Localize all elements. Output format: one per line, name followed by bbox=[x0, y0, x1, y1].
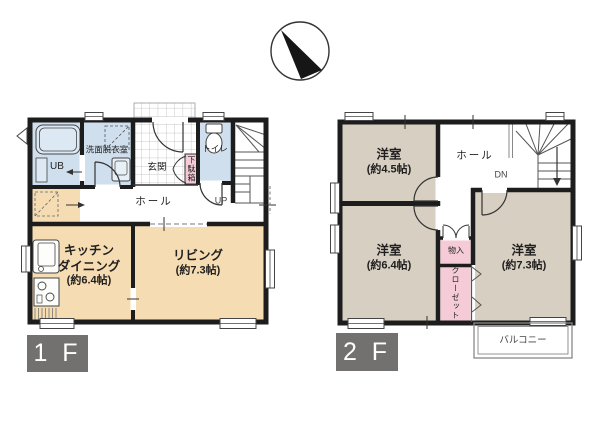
stairs-2f bbox=[509, 124, 571, 188]
entrance-label: 玄関 bbox=[147, 162, 166, 174]
stairs-1f bbox=[235, 125, 266, 203]
floor1-badge: 1 F bbox=[27, 335, 88, 372]
bedroom-73-name: 洋室 bbox=[502, 243, 547, 259]
bedroom-45-size: (約4.5帖) bbox=[367, 163, 412, 177]
unit-bath-label: UB bbox=[50, 161, 64, 174]
bedroom-45-label: 洋室 (約4.5帖) bbox=[367, 147, 412, 176]
hall-2f-label: ホール bbox=[456, 149, 494, 162]
kitchen-dining-label: キッチン ダイニング (約6.4帖) bbox=[58, 244, 121, 289]
living-label: リビング (約7.3帖) bbox=[173, 248, 223, 277]
stairs-down-arrow bbox=[553, 147, 561, 186]
stairs-up-label: UP bbox=[215, 195, 228, 206]
storage-label: 物入 bbox=[448, 246, 464, 256]
washbasin-icon bbox=[112, 158, 130, 181]
bedroom-64-size: (約6.4帖) bbox=[367, 259, 412, 273]
bedroom-64-label: 洋室 (約6.4帖) bbox=[367, 243, 412, 272]
floor2-badge: 2 F bbox=[336, 333, 398, 371]
closet-label: クローゼット bbox=[451, 266, 459, 320]
floorplan-page: UB 洗面脱衣室 玄関 下駄箱 トイレ ホール UP キッチン ダイニング (約… bbox=[0, 0, 600, 447]
stove-icon bbox=[34, 278, 59, 306]
kitchen-name-line1: キッチン bbox=[58, 244, 121, 260]
balcony-label: バルコニー bbox=[499, 335, 546, 347]
kitchen-name-line2: ダイニング bbox=[58, 259, 121, 275]
washroom-label: 洗面脱衣室 bbox=[86, 145, 129, 156]
kitchen-sink-icon bbox=[33, 240, 59, 273]
north-arrow-icon bbox=[271, 22, 329, 80]
stairs-dn-label: DN bbox=[495, 169, 508, 180]
bedroom-73-label: 洋室 (約7.3帖) bbox=[502, 243, 547, 272]
vent-triangle-icon bbox=[17, 128, 27, 144]
bedroom-45-name: 洋室 bbox=[367, 147, 412, 163]
floor1-plan bbox=[17, 103, 276, 329]
kitchen-size: (約6.4帖) bbox=[58, 275, 121, 289]
bedroom-73-size: (約7.3帖) bbox=[502, 259, 547, 273]
hall-1f-label: ホール bbox=[135, 195, 173, 208]
bedroom-64-name: 洋室 bbox=[367, 243, 412, 259]
floorplan-graphics bbox=[0, 0, 600, 447]
shoe-cabinet-label: 下駄箱 bbox=[187, 156, 195, 183]
living-size: (約7.3帖) bbox=[173, 264, 223, 278]
living-name: リビング bbox=[173, 248, 223, 264]
toilet-label: トイレ bbox=[202, 144, 228, 155]
